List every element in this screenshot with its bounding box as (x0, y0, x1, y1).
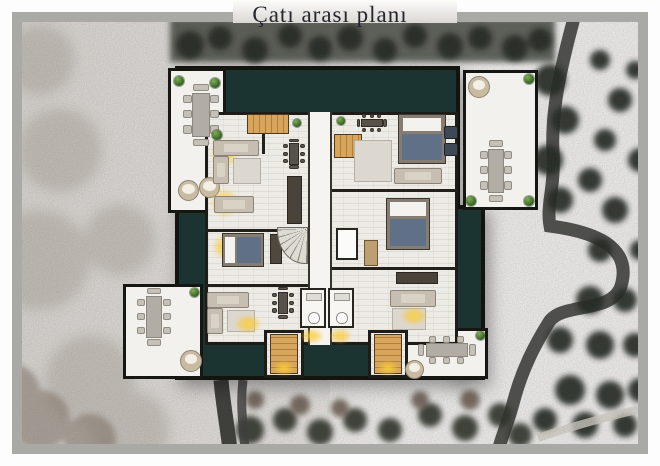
armchair (444, 126, 458, 139)
lamp-glow (328, 328, 352, 344)
armchair (444, 143, 458, 156)
plant (337, 117, 345, 125)
sofa (207, 292, 249, 308)
plant (293, 119, 301, 127)
elevator (336, 228, 358, 260)
lounge-chair (180, 350, 202, 372)
sofa (207, 308, 223, 334)
kitchen-counter (396, 272, 438, 284)
lamp-glow (400, 306, 428, 326)
lounge-chair (405, 360, 424, 379)
lounge-chair (468, 76, 490, 98)
dining-table (283, 140, 305, 168)
bed (222, 233, 264, 267)
plant (190, 288, 199, 297)
dining-table (272, 288, 294, 318)
interior-wall (332, 189, 458, 192)
dining-table (358, 114, 386, 132)
lounge-chair (178, 180, 199, 201)
attic-plan-page: Çatı arası planı (0, 0, 660, 466)
terrace-tr-dining-table (480, 142, 512, 200)
sofa (214, 196, 254, 213)
plant (210, 78, 220, 88)
attic-floor-plan (0, 0, 660, 466)
desk (364, 240, 378, 266)
bed (386, 198, 430, 250)
rug (354, 140, 392, 182)
rug (233, 158, 261, 184)
terrace-bl-dining-table (137, 290, 171, 344)
plant (476, 331, 485, 340)
bathroom (300, 288, 326, 328)
sofa (394, 168, 442, 184)
plant (524, 74, 534, 84)
sofa (213, 140, 259, 156)
interior-wall (332, 267, 458, 270)
lamp-glow (300, 328, 324, 344)
lamp-glow (376, 360, 400, 376)
bed (398, 114, 446, 164)
lamp-glow (272, 360, 296, 376)
plant (466, 196, 476, 206)
bathroom (328, 288, 354, 328)
sofa (213, 156, 229, 184)
interior-wall (205, 284, 308, 287)
stairs (247, 114, 289, 134)
terrace-br-dining-table (420, 336, 474, 364)
lamp-glow (234, 314, 262, 334)
sofa (390, 290, 436, 307)
kitchen-counter (287, 176, 302, 224)
plant (524, 196, 534, 206)
plant (174, 76, 184, 86)
page-title: Çatı arası planı (0, 0, 660, 30)
